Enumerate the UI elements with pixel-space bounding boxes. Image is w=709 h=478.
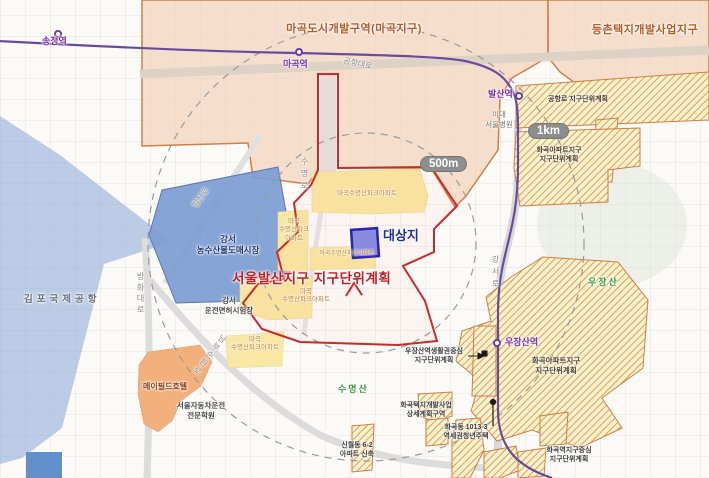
radius-badge-500m: 500m [420,156,467,172]
plan-label-sinwol-apt: 신월동 6-2 아파트 신축 [328,441,386,459]
deungchon-zone-label: 등촌택지개발사업지구 [583,24,707,38]
water-block [26,452,62,478]
plan-title: 서울발산지구 지구단위계획 [232,271,391,288]
plan-label-hwagok-station-center: 화곡역지구중심 지구단위계획 [534,446,604,464]
plan-label-ujangsan-station-area: 우장산역생활권중심 지구단위계획 [400,347,468,365]
mayfield-hotel-label: 메이필드호텔 [143,382,187,392]
mountain-label-sumyeongsan: 수명산 [338,384,369,395]
apartment-label-north: 마곡수명산파크아파트 [310,190,424,198]
plan-label-hwagok-detail: 화곡택지개발사업 상세계획구역 [390,401,462,419]
apartment-label-south: 마곡 수명산파크아파트 [225,336,285,353]
mountain-label-ujangsan: 우장산 [588,277,619,288]
road-label-gangseo-ro: 강서로 [490,255,500,291]
station-label-balsan: 발산역 [488,89,513,100]
station-label-magok: 마곡역 [283,59,308,70]
agro-market-label: 강서 농수산물도매시장 [176,234,280,256]
station-label-songjeong: 송정역 [42,36,67,47]
map-shape-layer [0,0,709,478]
plan-label-hwagok-apt-north: 화곡아파트지구 지구단위계획 [520,146,598,164]
driving-school-label: 서울자동차운전 전문학원 [168,401,234,421]
apartment-label-center: 마곡수명산파크아파트 [316,251,378,259]
road-label-banghwa-daero: 방화대로 [135,272,145,316]
license-test-center-label: 강서 운전면허시험장 [194,296,264,316]
plan-label-hwagok-youth-housing: 화곡동 1013-3 역세권청년주택 [430,423,502,441]
plan-label-hwagok-apt-south: 화곡아파트지구 지구단위계획 [516,356,596,376]
road-label-sumyeong-ro: 수명로 [299,157,309,193]
apartment-label-west: 마곡 수명산파크 아파트 [276,218,312,243]
radius-badge-1km: 1km [528,123,569,139]
gimpo-airport-label: 김포국제공항 [24,294,100,306]
magok-zone-label: 마곡도시개발구역(마곡지구) [266,23,442,37]
apartment-label-southwest: 마곡 수명산파크아파트 [277,288,335,305]
target-site-label: 대상지 [383,228,419,244]
station-label-ujangsan: 우장산역 [505,337,538,348]
plan-label-gonghangro: 공항로 지구단위계획 [548,95,608,104]
balsan-district-plan-map: 마곡도시개발구역(마곡지구) 등촌택지개발사업지구 송정역 마곡역 발산역 우장… [0,0,709,478]
ewha-hospital-label: 이대 서울병원 [476,110,522,130]
